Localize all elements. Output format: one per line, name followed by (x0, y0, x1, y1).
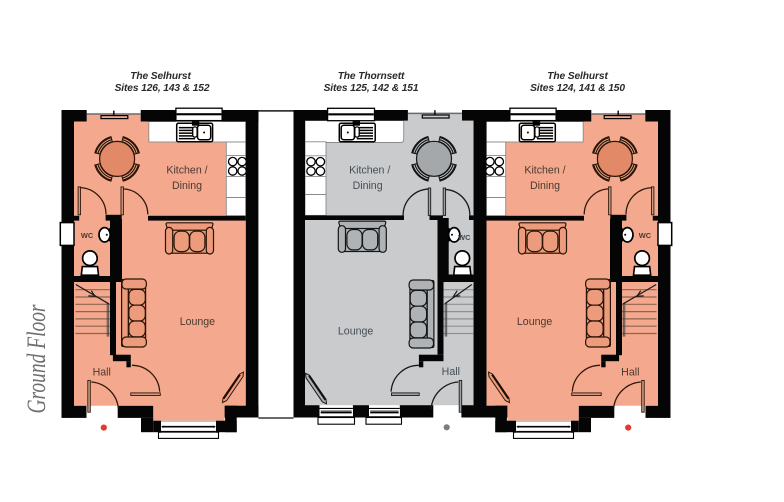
svg-text:The Selhurst: The Selhurst (130, 71, 191, 82)
svg-text:The Selhurst: The Selhurst (547, 71, 608, 82)
svg-text:Hall: Hall (621, 366, 639, 378)
svg-text:Kitchen /: Kitchen / (166, 165, 207, 177)
svg-text:Ground Floor: Ground Floor (22, 304, 51, 414)
svg-text:Sites 124, 141 & 150: Sites 124, 141 & 150 (530, 83, 625, 94)
svg-text:WC: WC (458, 233, 471, 242)
svg-text:The Thornsett: The Thornsett (338, 71, 405, 82)
svg-text:Dining: Dining (172, 180, 202, 192)
svg-text:Sites 125, 142 & 151: Sites 125, 142 & 151 (324, 83, 419, 94)
svg-text:Sites 126, 143 & 152: Sites 126, 143 & 152 (115, 83, 210, 94)
svg-text:WC: WC (81, 231, 94, 240)
svg-text:Hall: Hall (442, 366, 460, 378)
svg-text:Lounge: Lounge (517, 316, 552, 328)
svg-text:Dining: Dining (530, 180, 560, 192)
svg-text:Hall: Hall (93, 366, 111, 378)
svg-text:Lounge: Lounge (180, 316, 215, 328)
svg-text:Kitchen /: Kitchen / (524, 165, 565, 177)
svg-text:Kitchen /: Kitchen / (349, 165, 390, 177)
svg-text:Lounge: Lounge (338, 326, 373, 338)
svg-text:Dining: Dining (353, 180, 383, 192)
svg-text:WC: WC (639, 231, 652, 240)
